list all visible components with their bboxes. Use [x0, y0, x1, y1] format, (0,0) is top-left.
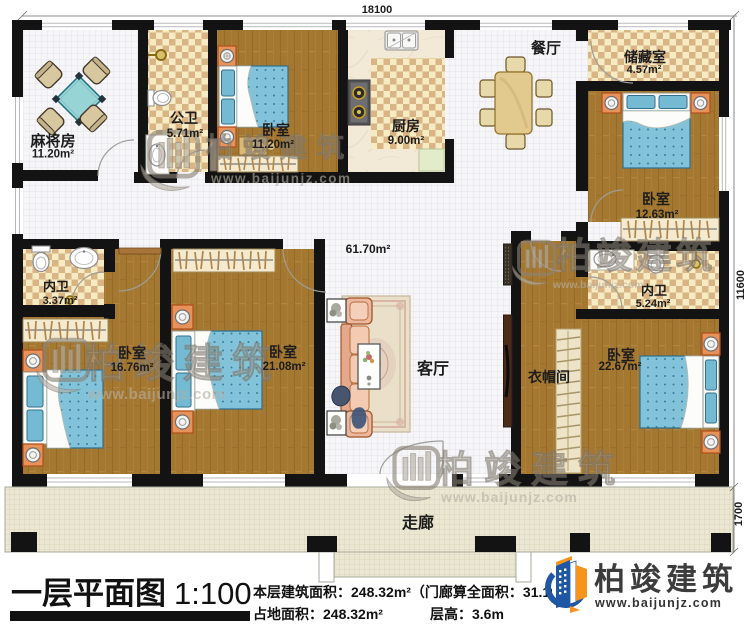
svg-text:61.70m²: 61.70m² — [346, 242, 391, 256]
svg-text:11.20m²: 11.20m² — [252, 139, 294, 151]
svg-text:11600: 11600 — [735, 270, 747, 300]
svg-text:www.baijunjz.com: www.baijunjz.com — [87, 386, 225, 403]
svg-text:储藏室: 储藏室 — [623, 49, 666, 65]
svg-text:12.63m²: 12.63m² — [636, 209, 679, 221]
svg-text:5.24m²: 5.24m² — [636, 298, 671, 310]
svg-text:内卫: 内卫 — [641, 283, 667, 298]
svg-text:9.00m²: 9.00m² — [388, 135, 425, 147]
svg-text:18100: 18100 — [362, 4, 393, 16]
svg-text:麻将房: 麻将房 — [29, 132, 75, 150]
svg-text:1700: 1700 — [733, 502, 745, 526]
svg-text:11.20m²: 11.20m² — [32, 149, 74, 161]
svg-text:走廊: 走廊 — [401, 513, 434, 532]
svg-text:占地面积：248.32m²: 占地面积：248.32m² — [253, 606, 383, 622]
svg-text:卧室: 卧室 — [269, 344, 297, 360]
svg-text:柏竣建筑: 柏竣建筑 — [594, 562, 738, 597]
svg-text:21.08m²: 21.08m² — [263, 361, 306, 373]
svg-text:客厅: 客厅 — [417, 359, 449, 378]
svg-text:餐厅: 餐厅 — [531, 39, 561, 57]
svg-text:www.baijunjz.com: www.baijunjz.com — [594, 596, 722, 610]
svg-text:卧室: 卧室 — [642, 191, 670, 207]
svg-text:www.baijunjz.com: www.baijunjz.com — [552, 279, 644, 291]
svg-text:www.baijunjz.com: www.baijunjz.com — [440, 489, 578, 505]
svg-text:厨房: 厨房 — [392, 118, 420, 134]
svg-text:卧室: 卧室 — [262, 122, 290, 138]
svg-text:层高：3.6m: 层高：3.6m — [430, 606, 504, 622]
svg-text:www.baijunjz.com: www.baijunjz.com — [210, 171, 352, 186]
svg-text:公卫: 公卫 — [170, 110, 198, 126]
svg-text:卧室: 卧室 — [118, 345, 146, 361]
svg-text:3.37m²: 3.37m² — [43, 295, 78, 307]
svg-text:22.67m²: 22.67m² — [599, 361, 642, 373]
svg-text:1:100: 1:100 — [174, 576, 252, 611]
svg-text:16.76m²: 16.76m² — [111, 362, 154, 374]
svg-text:柏竣建筑: 柏竣建筑 — [556, 235, 716, 276]
svg-text:内卫: 内卫 — [43, 279, 69, 294]
svg-text:一层平面图: 一层平面图 — [11, 576, 166, 611]
svg-text:5.71m²: 5.71m² — [167, 128, 204, 140]
svg-text:衣帽间: 衣帽间 — [528, 369, 570, 385]
svg-text:柏竣建筑: 柏竣建筑 — [437, 448, 625, 490]
svg-text:4.57m²: 4.57m² — [627, 64, 662, 76]
svg-text:本层建筑面积：248.32m²（门廊算全面积：31.16m²: 本层建筑面积：248.32m²（门廊算全面积：31.16m²） — [253, 584, 589, 600]
